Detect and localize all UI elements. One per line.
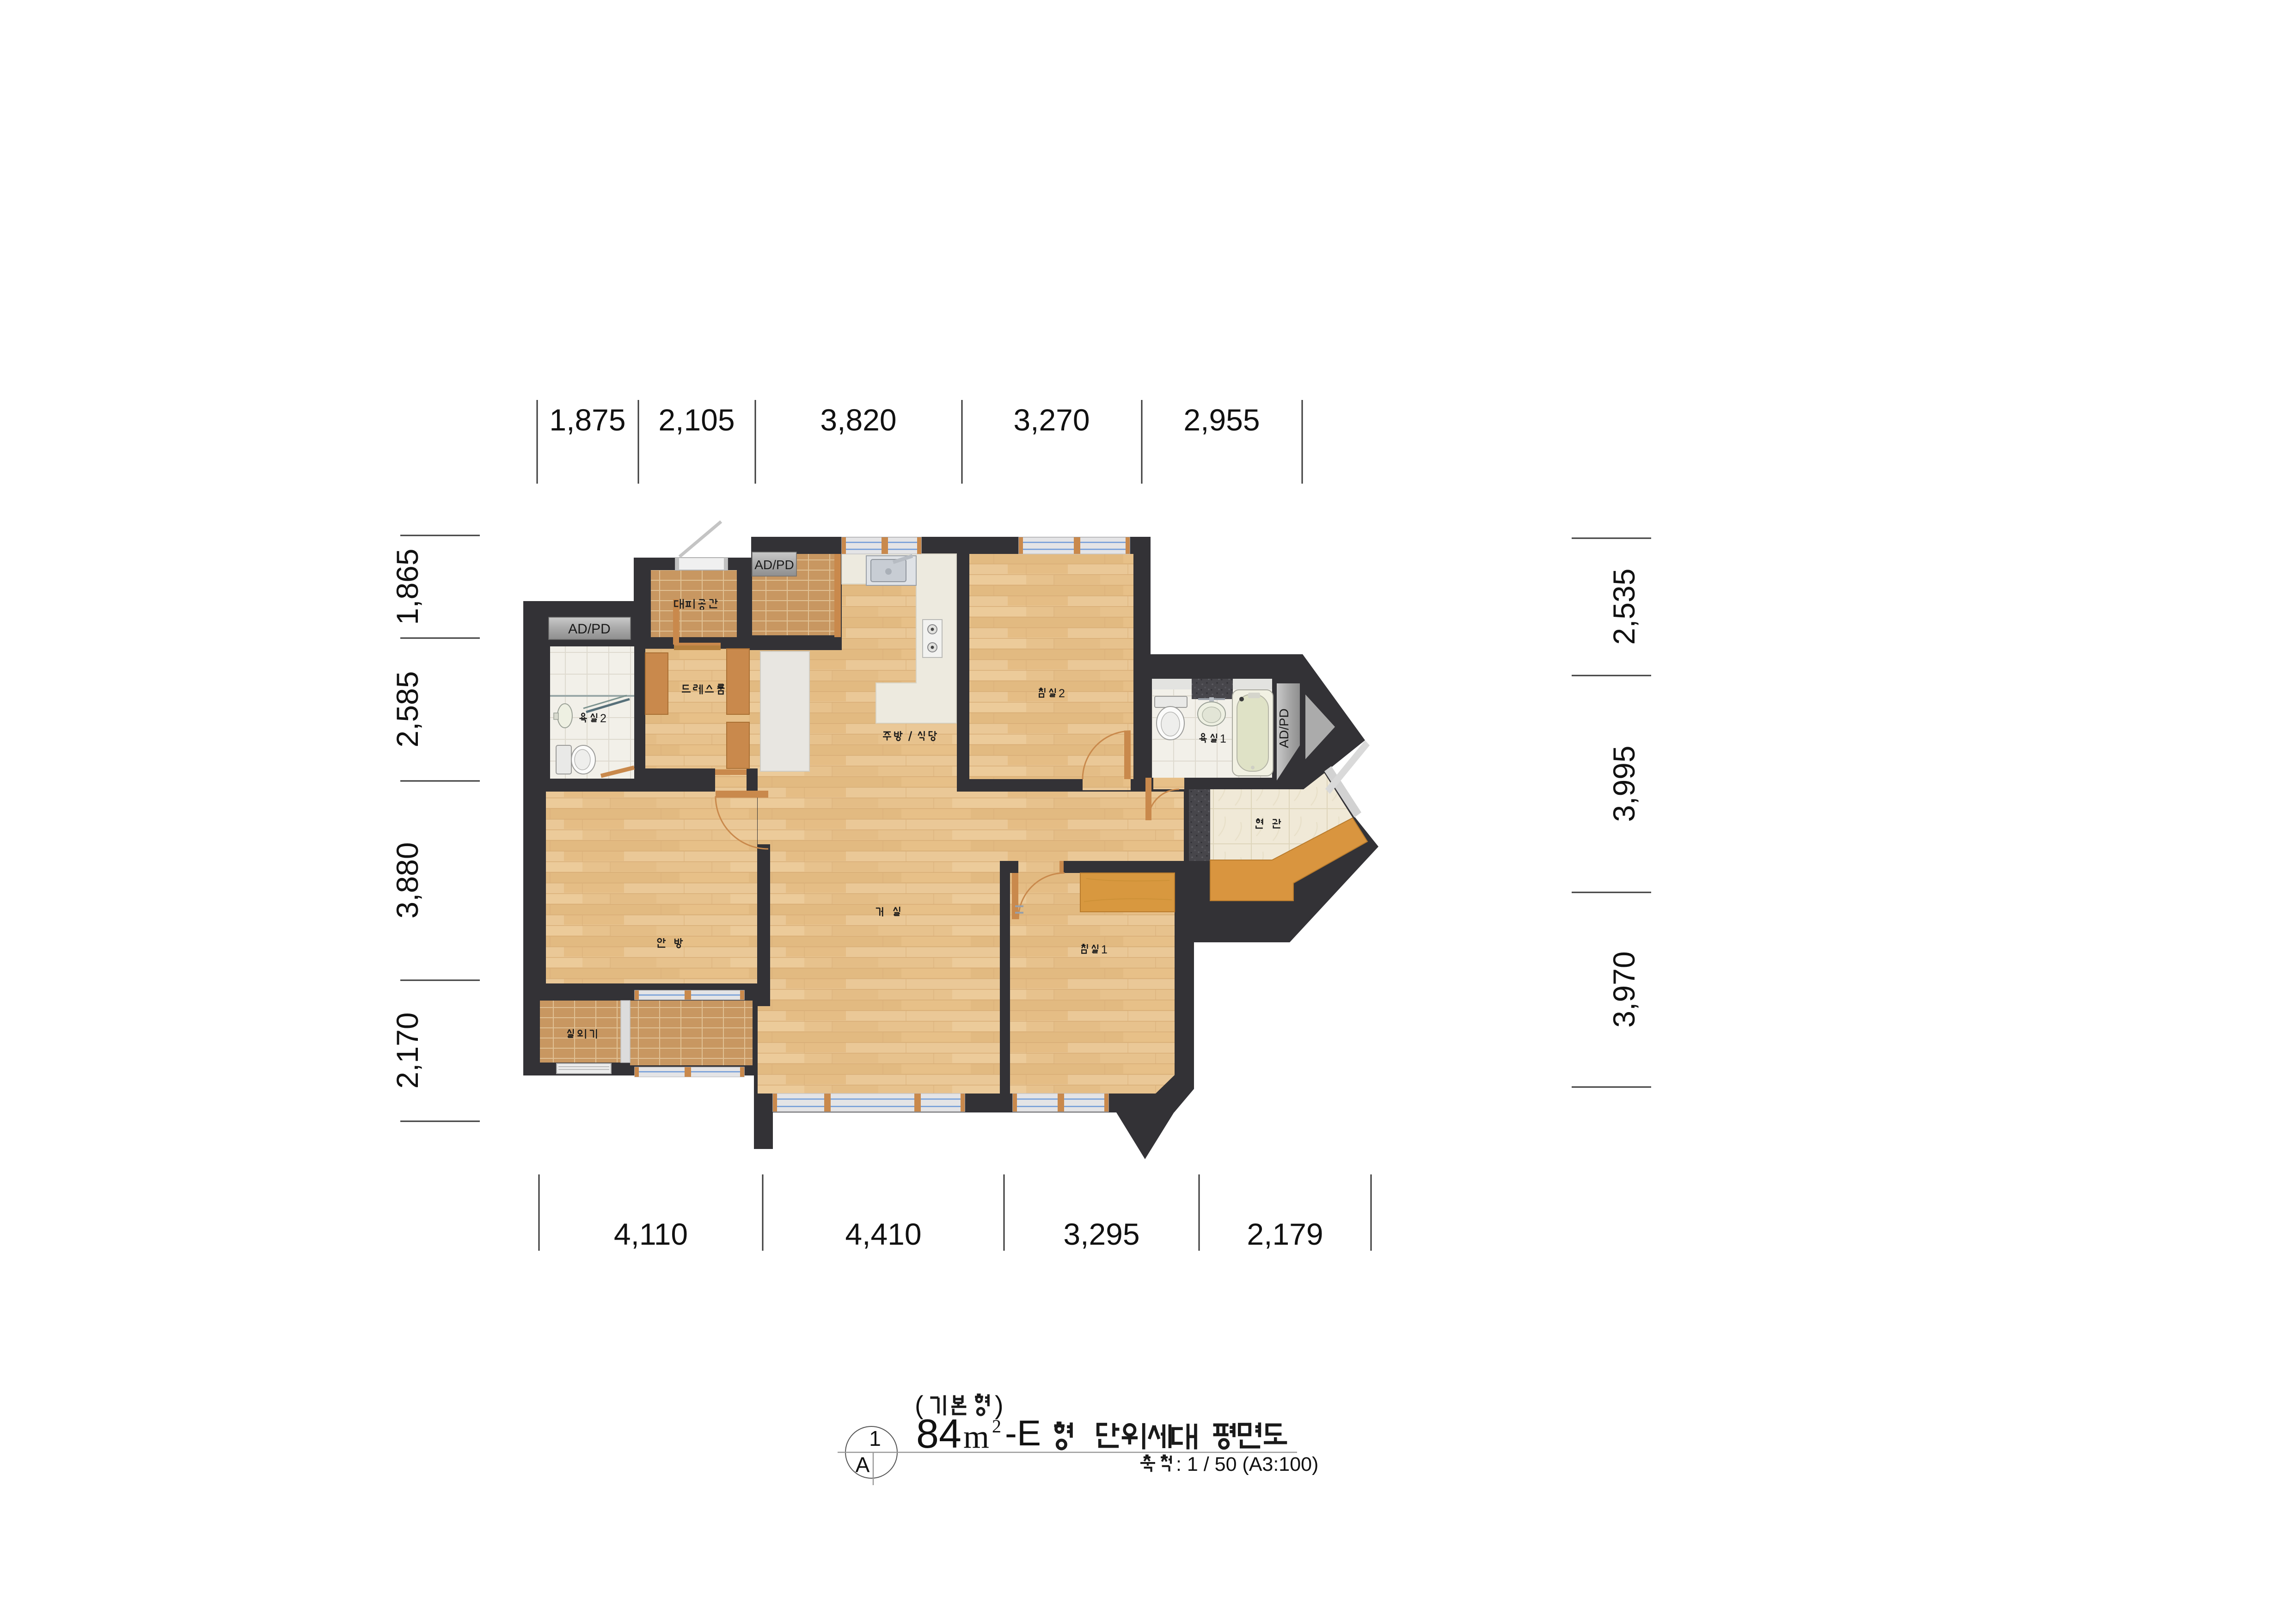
svg-text:-E: -E xyxy=(1005,1413,1041,1453)
svg-text:A: A xyxy=(856,1453,870,1477)
svg-text:2: 2 xyxy=(992,1416,1001,1437)
svg-text:2,105: 2,105 xyxy=(658,403,735,437)
svg-text:): ) xyxy=(995,1390,1004,1419)
svg-text:2,585: 2,585 xyxy=(390,671,424,747)
svg-text:2: 2 xyxy=(600,712,606,725)
svg-text:3,995: 3,995 xyxy=(1607,745,1641,822)
svg-text:84: 84 xyxy=(916,1411,961,1456)
svg-text:3,295: 3,295 xyxy=(1063,1217,1139,1251)
svg-text:4,410: 4,410 xyxy=(845,1217,921,1251)
svg-text:AD/PD: AD/PD xyxy=(754,558,794,572)
svg-text:3,880: 3,880 xyxy=(390,842,424,918)
svg-text:2,535: 2,535 xyxy=(1607,568,1641,645)
svg-text:1: 1 xyxy=(869,1426,881,1450)
svg-text:1,875: 1,875 xyxy=(549,403,625,437)
svg-text:: 1 / 50 (A3:100): : 1 / 50 (A3:100) xyxy=(1176,1453,1318,1475)
svg-text:AD/PD: AD/PD xyxy=(568,621,611,637)
svg-text:AD/PD: AD/PD xyxy=(1277,708,1291,748)
svg-text:3,970: 3,970 xyxy=(1607,951,1641,1027)
svg-text:2,170: 2,170 xyxy=(390,1012,424,1088)
svg-text:1: 1 xyxy=(1220,732,1226,745)
svg-text:3,820: 3,820 xyxy=(820,403,896,437)
svg-text:2: 2 xyxy=(1059,687,1065,700)
svg-text:3,270: 3,270 xyxy=(1013,403,1090,437)
svg-text:2,955: 2,955 xyxy=(1183,403,1260,437)
svg-text:4,110: 4,110 xyxy=(614,1217,688,1251)
svg-text:m: m xyxy=(963,1418,989,1455)
svg-text:1,865: 1,865 xyxy=(390,548,424,625)
svg-text:2,179: 2,179 xyxy=(1247,1217,1323,1251)
svg-text:1: 1 xyxy=(1101,943,1108,956)
